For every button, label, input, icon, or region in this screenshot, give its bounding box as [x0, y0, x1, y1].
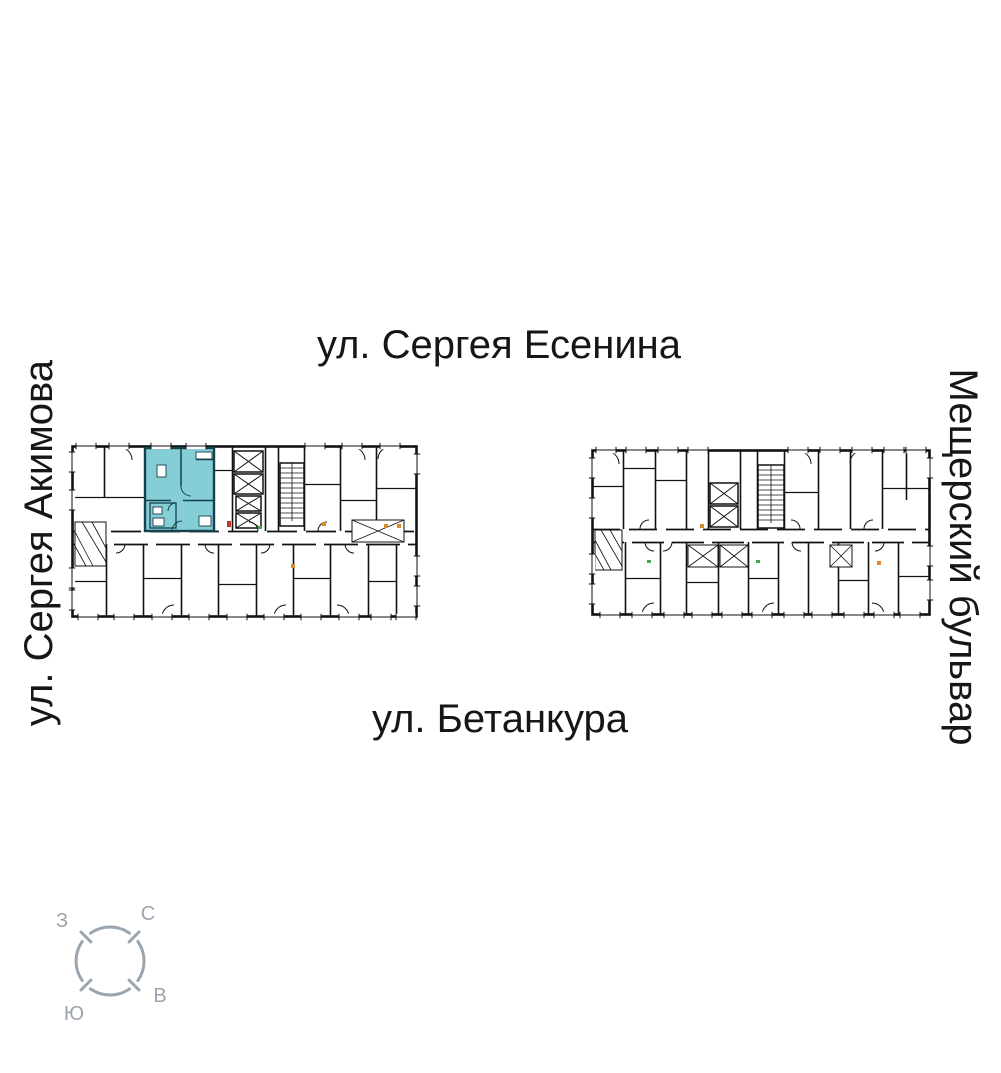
compass-labels: З С В Ю	[56, 903, 167, 1025]
compass: З С В Ю	[56, 903, 167, 1025]
bath-fixture	[153, 518, 164, 526]
elevator-shafts-left	[234, 451, 263, 528]
site-plan: ул. Сергея Есенина ул. Бетанкура ул. Сер…	[0, 0, 1001, 1068]
wardrobe	[199, 516, 211, 526]
fixture-orange	[322, 522, 326, 526]
floor-plans	[69, 443, 933, 620]
closet	[157, 465, 166, 477]
compass-ring	[76, 927, 144, 995]
fixture-orange	[397, 524, 401, 528]
fixture-green	[756, 560, 760, 563]
street-label-bottom: ул. Бетанкура	[372, 697, 629, 741]
selected-apartment[interactable]	[145, 448, 214, 531]
kitchen-counter	[196, 452, 212, 459]
fixture-green	[647, 560, 651, 563]
compass-label-south: Ю	[64, 1003, 84, 1025]
fixture-orange	[384, 524, 388, 528]
street-label-top: ул. Сергея Есенина	[317, 323, 682, 367]
compass-label-west: З	[56, 910, 68, 932]
fixture-orange	[877, 561, 881, 565]
building-left	[69, 443, 420, 620]
compass-label-east: В	[153, 985, 166, 1007]
street-label-right: Мещерский бульвар	[941, 369, 985, 746]
fixture-red	[227, 521, 231, 527]
bath-fixture	[153, 507, 162, 514]
stairwell-right	[758, 465, 784, 528]
fixture-orange	[700, 524, 704, 528]
fixture-green	[258, 526, 262, 529]
stairwell-left	[280, 463, 304, 526]
compass-label-north: С	[141, 903, 155, 925]
street-label-left: ул. Сергея Акимова	[17, 359, 61, 726]
building-right	[589, 447, 933, 618]
fixture-orange	[291, 564, 295, 568]
